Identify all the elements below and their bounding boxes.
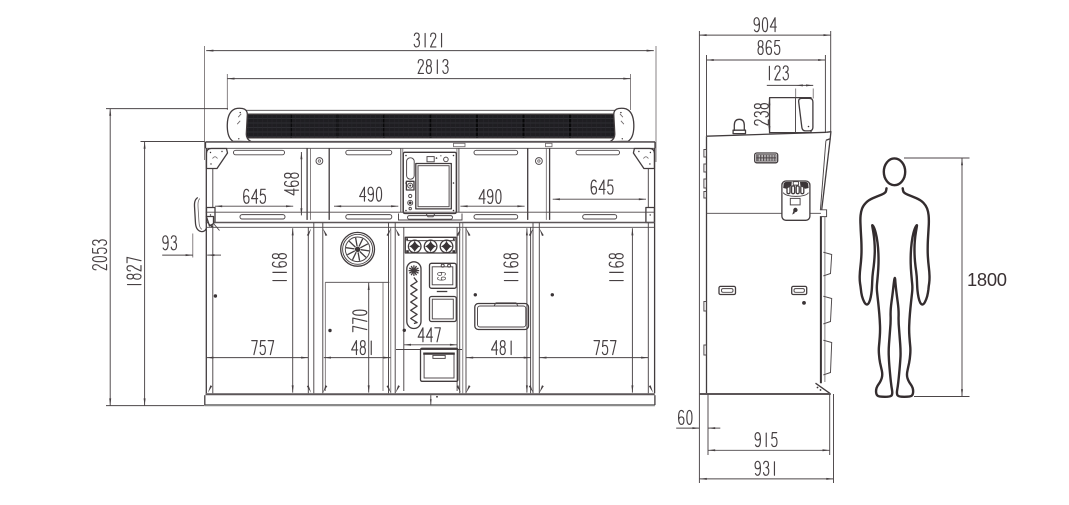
svg-text:1800: 1800 — [967, 269, 1007, 290]
